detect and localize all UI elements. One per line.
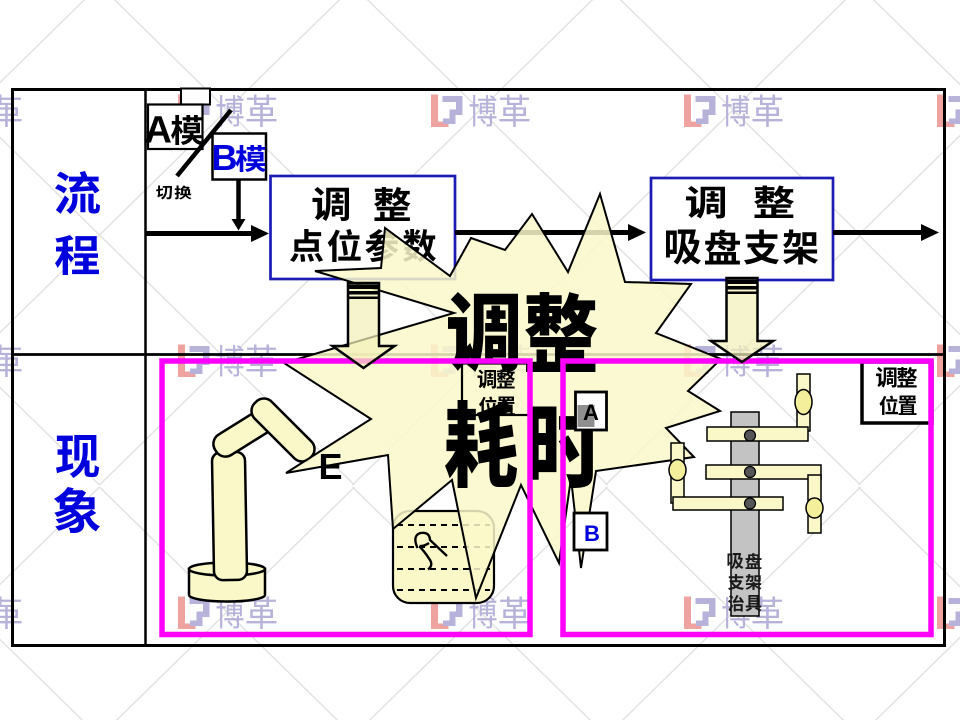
svg-text:B: B <box>584 521 600 546</box>
svg-text:A: A <box>583 400 599 425</box>
svg-text:B: B <box>212 137 238 178</box>
svg-text:A: A <box>145 110 172 152</box>
svg-text:E: E <box>319 446 343 487</box>
